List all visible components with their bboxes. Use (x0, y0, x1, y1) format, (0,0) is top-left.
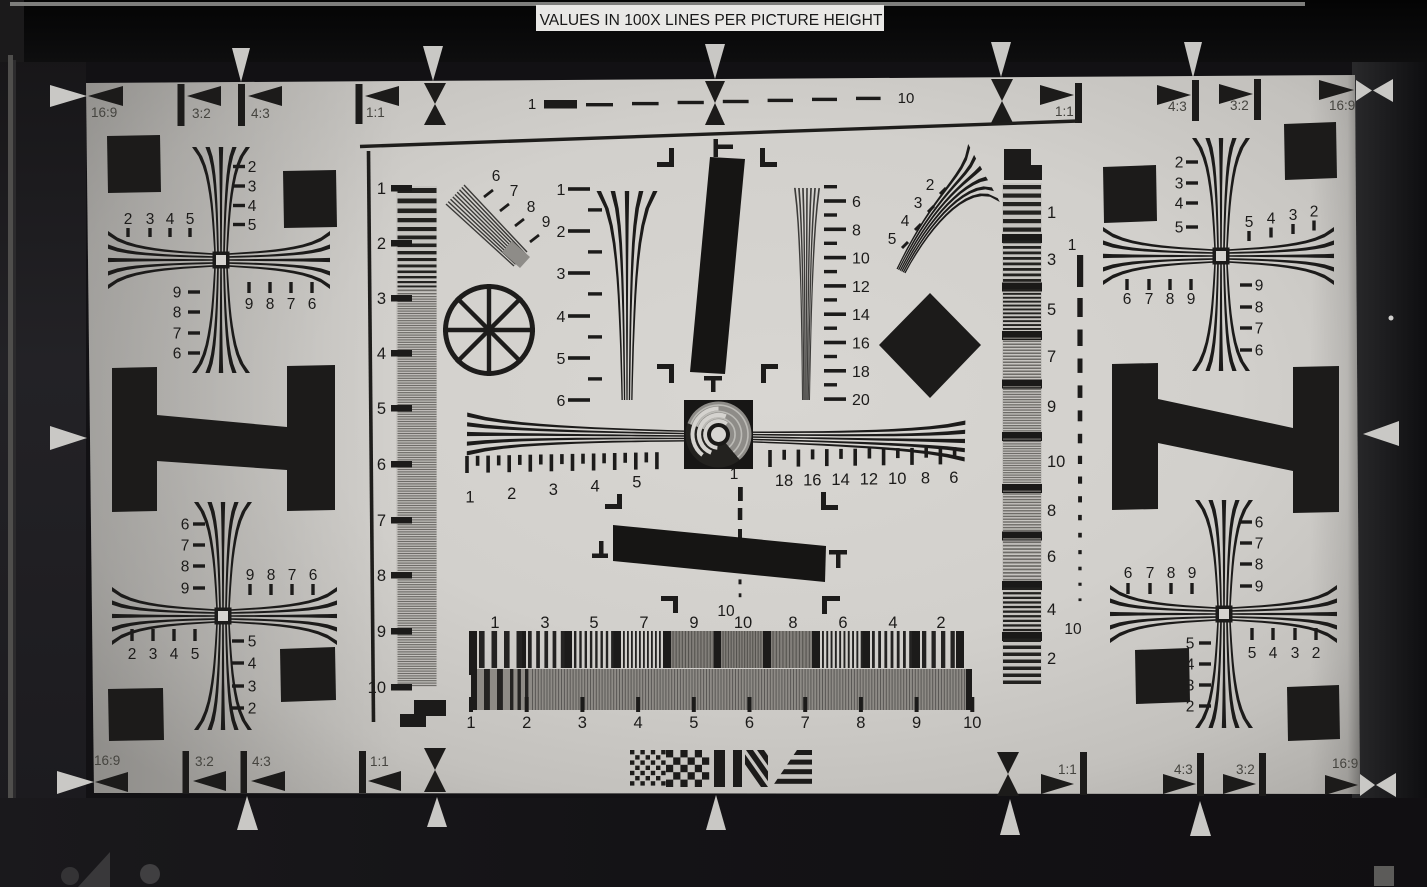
svg-text:6: 6 (377, 456, 386, 474)
svg-text:6: 6 (745, 714, 754, 732)
svg-text:10: 10 (734, 614, 752, 632)
svg-text:3: 3 (1047, 251, 1056, 269)
svg-text:8: 8 (527, 199, 536, 216)
svg-text:4: 4 (591, 478, 600, 496)
svg-text:16:9: 16:9 (91, 105, 117, 120)
svg-text:3: 3 (377, 290, 386, 308)
svg-text:12: 12 (852, 279, 870, 296)
svg-text:1: 1 (1068, 237, 1077, 254)
svg-text:8: 8 (267, 567, 276, 584)
svg-text:9: 9 (912, 714, 921, 732)
svg-text:4: 4 (1267, 211, 1276, 228)
svg-text:5: 5 (248, 217, 257, 234)
svg-text:3: 3 (914, 195, 923, 212)
svg-text:4: 4 (888, 614, 897, 632)
svg-text:7: 7 (173, 326, 182, 343)
svg-text:4: 4 (248, 656, 257, 673)
svg-text:2: 2 (1175, 155, 1184, 172)
svg-text:5: 5 (1248, 645, 1257, 662)
svg-text:2: 2 (522, 714, 531, 732)
svg-text:4: 4 (1047, 601, 1056, 619)
svg-text:2: 2 (128, 646, 137, 663)
svg-text:2: 2 (926, 177, 935, 194)
svg-text:10: 10 (717, 603, 735, 620)
svg-text:5: 5 (557, 351, 566, 368)
svg-text:1: 1 (557, 182, 566, 199)
svg-text:7: 7 (1146, 565, 1155, 582)
svg-text:1:1: 1:1 (1058, 762, 1077, 777)
svg-text:9: 9 (542, 214, 551, 231)
svg-text:7: 7 (288, 567, 297, 584)
svg-text:5: 5 (689, 714, 698, 732)
svg-text:9: 9 (181, 581, 190, 598)
svg-text:VALUES IN 100X LINES PER PICTU: VALUES IN 100X LINES PER PICTURE HEIGHT (540, 12, 883, 29)
svg-text:1: 1 (528, 96, 536, 113)
svg-text:2: 2 (248, 159, 257, 176)
svg-text:7: 7 (1255, 536, 1264, 553)
svg-text:1: 1 (490, 614, 499, 632)
svg-text:4: 4 (901, 213, 910, 230)
svg-text:8: 8 (181, 559, 190, 576)
svg-text:6: 6 (309, 567, 318, 584)
svg-text:2: 2 (1310, 204, 1319, 221)
svg-text:10: 10 (852, 251, 870, 268)
svg-text:6: 6 (557, 393, 566, 410)
svg-text:8: 8 (1167, 565, 1176, 582)
svg-text:7: 7 (181, 538, 190, 555)
svg-text:8: 8 (1166, 291, 1175, 308)
svg-text:5: 5 (589, 614, 598, 632)
svg-text:3: 3 (557, 266, 566, 283)
svg-text:2: 2 (507, 485, 516, 503)
svg-text:8: 8 (377, 567, 386, 585)
svg-text:8: 8 (1047, 502, 1056, 520)
svg-text:8: 8 (852, 222, 861, 239)
svg-text:5: 5 (1047, 301, 1056, 319)
svg-text:4:3: 4:3 (251, 106, 270, 121)
svg-text:12: 12 (860, 471, 878, 489)
svg-text:1:1: 1:1 (366, 105, 385, 120)
svg-text:7: 7 (287, 296, 296, 313)
svg-text:8: 8 (1255, 300, 1264, 317)
svg-text:10: 10 (368, 679, 386, 697)
svg-text:2: 2 (936, 614, 945, 632)
svg-text:9: 9 (1255, 579, 1264, 596)
svg-text:3: 3 (248, 179, 257, 196)
svg-text:1:1: 1:1 (1055, 104, 1074, 119)
svg-text:18: 18 (775, 472, 793, 490)
svg-text:7: 7 (1047, 348, 1056, 366)
svg-text:2: 2 (377, 235, 386, 253)
svg-text:7: 7 (1255, 321, 1264, 338)
svg-text:16: 16 (803, 471, 821, 489)
svg-text:7: 7 (801, 714, 810, 732)
svg-text:5: 5 (888, 231, 897, 248)
svg-text:4: 4 (377, 345, 386, 363)
svg-text:6: 6 (1047, 548, 1056, 566)
svg-text:4: 4 (634, 714, 643, 732)
svg-text:3: 3 (1289, 207, 1298, 224)
svg-text:8: 8 (266, 296, 275, 313)
svg-text:5: 5 (186, 211, 195, 228)
svg-text:2: 2 (248, 701, 257, 718)
svg-text:3: 3 (149, 646, 158, 663)
svg-text:10: 10 (1064, 621, 1082, 638)
svg-text:10: 10 (1047, 453, 1065, 471)
svg-text:4: 4 (557, 309, 566, 326)
svg-text:4: 4 (1269, 645, 1278, 662)
svg-text:9: 9 (1255, 278, 1264, 295)
svg-text:1:1: 1:1 (370, 754, 389, 769)
svg-text:2: 2 (557, 224, 566, 241)
svg-text:5: 5 (1175, 220, 1184, 237)
svg-text:9: 9 (1187, 291, 1196, 308)
svg-text:5: 5 (191, 646, 200, 663)
svg-text:7: 7 (510, 183, 519, 200)
svg-text:6: 6 (181, 517, 190, 534)
svg-text:16:9: 16:9 (94, 753, 120, 768)
svg-text:8: 8 (921, 470, 930, 488)
svg-text:5: 5 (632, 474, 641, 492)
svg-text:5: 5 (248, 634, 257, 651)
svg-text:7: 7 (377, 512, 386, 530)
svg-text:10: 10 (888, 470, 906, 488)
svg-text:3:2: 3:2 (1230, 98, 1249, 113)
svg-text:16:9: 16:9 (1329, 98, 1355, 113)
svg-text:6: 6 (1255, 343, 1264, 360)
svg-text:16:9: 16:9 (1332, 756, 1358, 771)
svg-text:9: 9 (173, 285, 182, 302)
svg-text:4:3: 4:3 (1174, 762, 1193, 777)
svg-text:9: 9 (689, 614, 698, 632)
svg-text:18: 18 (852, 364, 870, 381)
svg-text:4: 4 (248, 198, 257, 215)
svg-text:6: 6 (1124, 565, 1133, 582)
svg-text:3: 3 (146, 211, 155, 228)
svg-text:7: 7 (639, 614, 648, 632)
svg-text:1: 1 (1047, 204, 1056, 222)
svg-text:6: 6 (852, 194, 861, 211)
svg-text:8: 8 (1255, 557, 1264, 574)
svg-text:9: 9 (245, 296, 254, 313)
svg-text:6: 6 (492, 168, 501, 185)
svg-text:4: 4 (1175, 196, 1184, 213)
svg-text:3: 3 (248, 679, 257, 696)
svg-text:10: 10 (898, 90, 915, 107)
svg-text:10: 10 (963, 714, 981, 732)
svg-text:9: 9 (1188, 565, 1197, 582)
svg-text:1: 1 (466, 714, 475, 732)
svg-text:14: 14 (831, 471, 849, 489)
svg-text:5: 5 (377, 400, 386, 418)
svg-text:6: 6 (1123, 291, 1132, 308)
svg-text:3:2: 3:2 (195, 754, 214, 769)
svg-text:3: 3 (1175, 176, 1184, 193)
svg-text:1: 1 (377, 180, 386, 198)
svg-text:6: 6 (308, 296, 317, 313)
svg-text:4: 4 (166, 211, 175, 228)
svg-text:8: 8 (788, 614, 797, 632)
svg-text:3:2: 3:2 (1236, 762, 1255, 777)
svg-text:6: 6 (949, 469, 958, 487)
svg-text:1: 1 (465, 489, 474, 507)
svg-text:4: 4 (170, 646, 179, 663)
svg-text:4:3: 4:3 (1168, 99, 1187, 114)
svg-text:3: 3 (1291, 645, 1300, 662)
svg-text:7: 7 (1145, 291, 1154, 308)
svg-text:8: 8 (173, 305, 182, 322)
svg-text:5: 5 (1245, 214, 1254, 231)
svg-text:9: 9 (377, 623, 386, 641)
svg-text:3: 3 (549, 481, 558, 499)
svg-text:2: 2 (124, 211, 133, 228)
svg-text:6: 6 (838, 614, 847, 632)
svg-text:3: 3 (578, 714, 587, 732)
svg-text:6: 6 (1255, 515, 1264, 532)
svg-text:20: 20 (852, 392, 870, 409)
svg-text:3: 3 (540, 614, 549, 632)
svg-text:8: 8 (856, 714, 865, 732)
svg-text:9: 9 (1047, 398, 1056, 416)
svg-text:4:3: 4:3 (252, 754, 271, 769)
svg-text:2: 2 (1312, 645, 1321, 662)
svg-text:3:2: 3:2 (192, 106, 211, 121)
svg-text:2: 2 (1047, 650, 1056, 668)
svg-text:14: 14 (852, 307, 870, 324)
svg-text:6: 6 (173, 346, 182, 363)
svg-text:9: 9 (246, 567, 255, 584)
svg-text:16: 16 (852, 336, 870, 353)
